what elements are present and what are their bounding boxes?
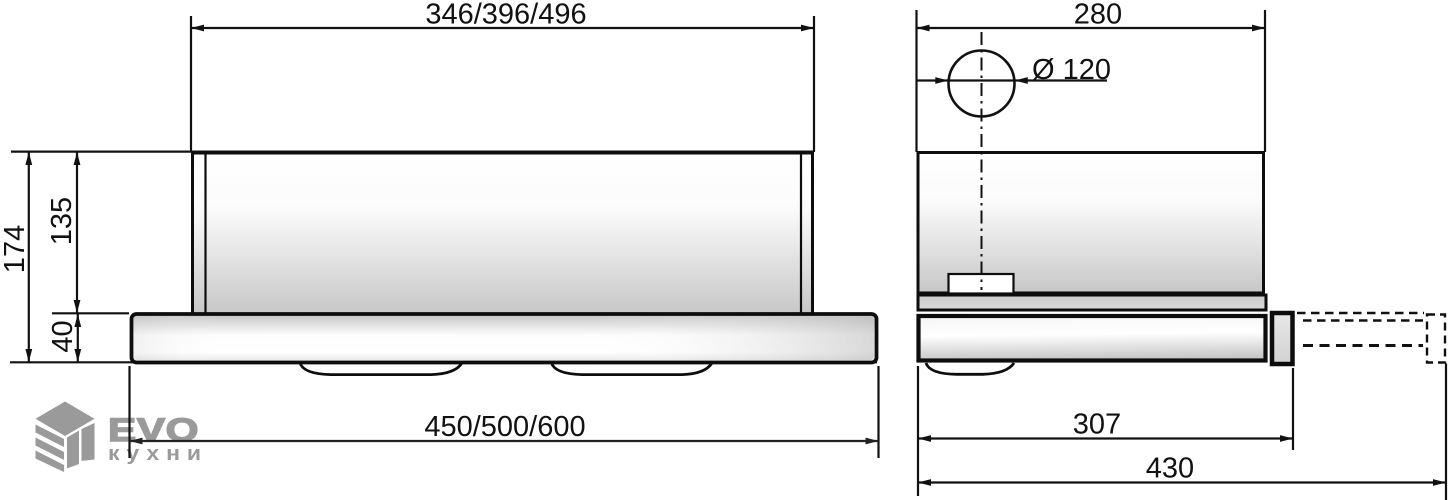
svg-text:135: 135	[46, 197, 78, 245]
svg-text:40: 40	[47, 320, 79, 352]
svg-text:280: 280	[1074, 0, 1122, 31]
svg-text:450/500/600: 450/500/600	[424, 411, 585, 443]
svg-text:430: 430	[1146, 453, 1194, 485]
svg-text:307: 307	[1073, 409, 1121, 441]
svg-text:346/396/496: 346/396/496	[425, 0, 586, 31]
svg-text:кухни: кухни	[108, 441, 208, 464]
svg-text:174: 174	[0, 225, 31, 273]
svg-text:Ø 120: Ø 120	[1032, 54, 1111, 86]
